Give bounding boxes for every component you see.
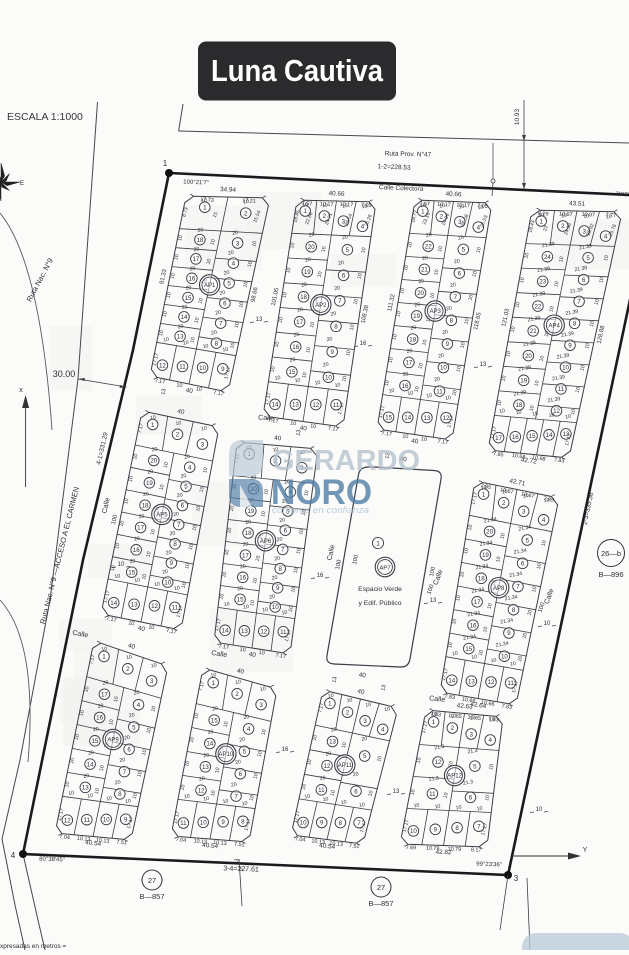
svg-text:20: 20 <box>215 310 222 317</box>
svg-text:10: 10 <box>196 386 203 393</box>
svg-text:18: 18 <box>196 237 203 244</box>
svg-text:10: 10 <box>565 414 572 421</box>
svg-text:20: 20 <box>228 250 235 257</box>
svg-text:10: 10 <box>445 395 452 402</box>
svg-text:AP12: AP12 <box>447 774 462 780</box>
svg-text:20: 20 <box>245 519 252 526</box>
svg-text:17: 17 <box>495 435 502 442</box>
svg-text:20: 20 <box>322 362 329 369</box>
svg-text:10: 10 <box>262 607 269 614</box>
svg-text:20: 20 <box>83 773 90 780</box>
svg-text:B—896: B—896 <box>598 570 623 579</box>
svg-text:6: 6 <box>354 789 358 796</box>
svg-text:5: 5 <box>525 537 529 544</box>
svg-text:18: 18 <box>300 294 307 301</box>
svg-text:6: 6 <box>181 503 185 510</box>
svg-text:21: 21 <box>421 267 428 274</box>
svg-text:1: 1 <box>376 540 380 547</box>
svg-text:15: 15 <box>211 717 218 724</box>
svg-text:10: 10 <box>334 382 341 389</box>
svg-text:12: 12 <box>159 362 166 369</box>
svg-text:3: 3 <box>469 731 473 738</box>
svg-text:3-4=227.61: 3-4=227.61 <box>223 865 259 873</box>
svg-text:16: 16 <box>292 344 299 351</box>
svg-text:10: 10 <box>340 799 347 806</box>
svg-text:10: 10 <box>314 380 321 387</box>
svg-text:8: 8 <box>278 566 282 573</box>
svg-text:10: 10 <box>174 585 181 592</box>
svg-text:5: 5 <box>586 255 590 262</box>
svg-text:10: 10 <box>490 657 497 664</box>
svg-text:20: 20 <box>402 371 409 378</box>
svg-text:10: 10 <box>210 672 217 679</box>
svg-text:26—b: 26—b <box>601 549 621 558</box>
svg-text:7.04: 7.04 <box>175 837 186 844</box>
svg-text:AP4: AP4 <box>549 323 561 329</box>
svg-text:11: 11 <box>180 820 187 827</box>
svg-text:20: 20 <box>185 285 192 292</box>
svg-text:13: 13 <box>393 789 400 795</box>
svg-text:43.51: 43.51 <box>569 200 586 208</box>
svg-text:20: 20 <box>308 232 315 239</box>
svg-text:20: 20 <box>271 575 278 582</box>
svg-text:20: 20 <box>203 752 210 759</box>
svg-text:16: 16 <box>282 747 289 753</box>
svg-text:18: 18 <box>515 402 522 409</box>
svg-text:9: 9 <box>446 341 450 348</box>
svg-text:10: 10 <box>359 802 366 809</box>
svg-text:AP1: AP1 <box>204 283 216 289</box>
svg-text:Luna Cautiva: Luna Cautiva <box>211 53 384 88</box>
svg-text:12: 12 <box>435 759 442 766</box>
svg-text:100°21'7": 100°21'7" <box>183 180 209 187</box>
svg-text:10: 10 <box>402 434 409 441</box>
svg-text:12: 12 <box>312 402 319 409</box>
svg-text:10.79: 10.79 <box>448 846 462 852</box>
svg-text:22: 22 <box>534 303 541 310</box>
svg-text:10: 10 <box>150 415 157 422</box>
svg-text:19: 19 <box>304 269 311 276</box>
svg-text:20: 20 <box>406 348 413 355</box>
svg-text:7.77: 7.77 <box>605 213 616 220</box>
svg-text:20: 20 <box>289 357 296 364</box>
svg-text:15: 15 <box>237 597 244 604</box>
svg-text:20: 20 <box>426 232 433 239</box>
svg-text:10: 10 <box>201 426 208 433</box>
svg-text:20: 20 <box>414 302 421 309</box>
svg-text:17.73: 17.73 <box>200 197 214 204</box>
svg-text:20: 20 <box>207 729 214 736</box>
svg-text:20: 20 <box>173 511 180 518</box>
svg-text:13: 13 <box>381 684 388 691</box>
svg-text:7.05: 7.05 <box>361 203 372 210</box>
svg-text:20: 20 <box>240 563 247 570</box>
svg-text:1: 1 <box>203 204 207 211</box>
svg-text:2: 2 <box>126 666 130 673</box>
svg-text:99°23'36": 99°23'36" <box>476 862 502 869</box>
svg-text:20: 20 <box>181 304 188 311</box>
svg-text:19: 19 <box>247 508 254 515</box>
svg-text:8: 8 <box>512 607 516 614</box>
svg-text:10.17: 10.17 <box>456 203 470 210</box>
svg-text:6: 6 <box>284 527 288 534</box>
svg-text:20: 20 <box>422 255 429 262</box>
svg-text:20: 20 <box>165 550 172 557</box>
svg-text:24: 24 <box>544 254 551 261</box>
svg-text:22: 22 <box>425 243 432 250</box>
svg-text:9: 9 <box>507 630 511 637</box>
svg-text:8: 8 <box>173 541 177 548</box>
svg-text:3: 3 <box>259 702 263 709</box>
svg-text:10: 10 <box>182 340 189 347</box>
svg-text:16: 16 <box>512 434 519 441</box>
svg-text:10: 10 <box>235 679 242 686</box>
svg-text:1-2=228.53: 1-2=228.53 <box>377 163 411 171</box>
svg-text:20: 20 <box>331 727 338 734</box>
svg-text:AP8: AP8 <box>493 586 505 592</box>
svg-text:20: 20 <box>454 258 461 265</box>
svg-text:10: 10 <box>222 347 229 354</box>
svg-text:4: 4 <box>11 851 16 860</box>
svg-text:20: 20 <box>143 491 150 498</box>
svg-text:18: 18 <box>409 336 416 343</box>
svg-text:16: 16 <box>133 547 140 554</box>
svg-text:7: 7 <box>338 298 342 305</box>
svg-text:20: 20 <box>486 529 493 536</box>
svg-text:AP11: AP11 <box>338 763 353 769</box>
svg-text:20: 20 <box>151 446 158 453</box>
svg-text:20: 20 <box>134 536 141 543</box>
svg-text:10: 10 <box>281 610 288 617</box>
svg-text:7.04: 7.04 <box>295 836 306 843</box>
svg-text:27: 27 <box>148 876 156 885</box>
svg-text:10: 10 <box>434 804 441 811</box>
svg-text:10: 10 <box>203 796 210 803</box>
svg-text:1: 1 <box>151 422 155 429</box>
svg-text:9: 9 <box>170 560 174 567</box>
svg-text:10: 10 <box>184 793 191 800</box>
svg-text:2: 2 <box>502 500 506 507</box>
svg-text:17.21: 17.21 <box>242 198 256 205</box>
svg-text:20: 20 <box>243 714 250 721</box>
svg-text:10: 10 <box>68 790 75 797</box>
svg-text:20: 20 <box>150 458 157 465</box>
svg-text:20: 20 <box>88 750 95 757</box>
svg-text:20: 20 <box>129 558 136 565</box>
svg-text:10: 10 <box>199 365 206 372</box>
svg-text:10: 10 <box>164 579 171 586</box>
svg-text:8.29: 8.29 <box>538 211 549 218</box>
svg-text:15: 15 <box>385 415 392 422</box>
svg-text:3: 3 <box>514 874 519 883</box>
svg-text:14: 14 <box>87 761 94 768</box>
svg-text:6: 6 <box>458 270 462 277</box>
svg-text:10: 10 <box>532 411 539 418</box>
svg-text:6: 6 <box>239 771 243 778</box>
svg-text:12: 12 <box>64 817 71 824</box>
svg-text:10: 10 <box>222 798 229 805</box>
svg-text:7.57: 7.57 <box>302 201 313 208</box>
svg-text:20: 20 <box>438 353 445 360</box>
svg-text:4: 4 <box>247 726 251 733</box>
svg-text:18: 18 <box>478 576 485 583</box>
svg-text:1: 1 <box>328 701 332 708</box>
svg-text:10: 10 <box>421 436 428 443</box>
svg-text:10: 10 <box>106 796 113 803</box>
svg-text:7.69: 7.69 <box>406 845 417 851</box>
svg-text:AP10: AP10 <box>219 752 234 758</box>
svg-text:20: 20 <box>434 376 441 383</box>
svg-text:20: 20 <box>119 757 126 764</box>
svg-text:10: 10 <box>515 409 522 416</box>
svg-text:11: 11 <box>179 364 186 371</box>
svg-text:20: 20 <box>293 332 300 339</box>
svg-text:E: E <box>20 181 24 187</box>
svg-text:10: 10 <box>175 420 182 427</box>
svg-text:19: 19 <box>482 552 489 559</box>
svg-text:16: 16 <box>470 622 477 629</box>
svg-text:7: 7 <box>234 793 238 800</box>
svg-text:20: 20 <box>319 775 326 782</box>
svg-text:20: 20 <box>334 285 341 292</box>
svg-text:16: 16 <box>360 341 367 347</box>
svg-text:20: 20 <box>223 270 230 277</box>
svg-text:20: 20 <box>326 336 333 343</box>
svg-text:13: 13 <box>256 317 263 323</box>
svg-text:10.13: 10.13 <box>213 840 227 847</box>
svg-text:20: 20 <box>199 776 206 783</box>
svg-text:6: 6 <box>342 273 346 280</box>
svg-text:42.63: 42.63 <box>456 702 473 710</box>
svg-text:Calle: Calle <box>429 695 446 703</box>
svg-text:15: 15 <box>465 646 472 653</box>
svg-text:5: 5 <box>132 724 136 731</box>
svg-text:10: 10 <box>410 828 417 835</box>
svg-text:20: 20 <box>410 325 417 332</box>
svg-text:10: 10 <box>548 412 555 419</box>
svg-text:20: 20 <box>417 290 424 297</box>
svg-text:8: 8 <box>455 825 459 832</box>
svg-text:14: 14 <box>404 415 411 422</box>
svg-text:7.05: 7.05 <box>477 203 488 210</box>
svg-text:5: 5 <box>184 484 188 491</box>
svg-text:20: 20 <box>276 536 283 543</box>
svg-text:1: 1 <box>432 719 436 726</box>
svg-text:7: 7 <box>219 320 223 327</box>
svg-text:11: 11 <box>429 791 436 798</box>
svg-text:10: 10 <box>388 388 395 395</box>
svg-text:20: 20 <box>237 586 244 593</box>
svg-text:10: 10 <box>346 697 353 704</box>
svg-text:5: 5 <box>363 753 367 760</box>
svg-text:20: 20 <box>176 492 183 499</box>
svg-text:20: 20 <box>147 469 154 476</box>
svg-text:80°38'45": 80°38'45" <box>39 857 65 864</box>
svg-text:xpresadas en metros =: xpresadas en metros = <box>0 943 67 950</box>
svg-text:10.87: 10.87 <box>559 211 573 218</box>
svg-text:AP6: AP6 <box>260 539 272 545</box>
svg-text:10: 10 <box>294 377 301 384</box>
svg-text:10: 10 <box>87 793 94 800</box>
svg-text:13: 13 <box>292 402 299 409</box>
svg-text:13: 13 <box>241 628 248 635</box>
svg-text:AP2: AP2 <box>315 303 327 309</box>
svg-text:20: 20 <box>525 353 532 360</box>
svg-text:20: 20 <box>133 690 140 697</box>
svg-text:7.51: 7.51 <box>349 843 360 850</box>
svg-text:14: 14 <box>546 432 553 439</box>
svg-text:12: 12 <box>151 603 158 610</box>
svg-text:8: 8 <box>339 820 343 827</box>
svg-text:10: 10 <box>310 423 317 430</box>
svg-text:4: 4 <box>232 260 236 267</box>
svg-text:18: 18 <box>142 502 149 509</box>
svg-text:10: 10 <box>176 382 183 389</box>
svg-text:9: 9 <box>320 820 324 827</box>
svg-text:14: 14 <box>110 600 117 607</box>
svg-text:7.51: 7.51 <box>234 842 245 849</box>
svg-text:10: 10 <box>300 820 307 827</box>
svg-text:13: 13 <box>234 858 241 865</box>
svg-text:20: 20 <box>197 227 204 234</box>
svg-text:10: 10 <box>384 706 391 713</box>
svg-text:10: 10 <box>304 794 311 801</box>
svg-text:7.57: 7.57 <box>419 201 430 208</box>
svg-text:5: 5 <box>462 247 466 254</box>
svg-text:10: 10 <box>154 581 161 588</box>
svg-text:20: 20 <box>305 257 312 264</box>
svg-text:10: 10 <box>536 807 543 813</box>
svg-text:3: 3 <box>201 441 205 448</box>
svg-text:8: 8 <box>215 340 219 347</box>
svg-text:10: 10 <box>544 621 551 627</box>
svg-text:20: 20 <box>297 307 304 314</box>
svg-text:20: 20 <box>128 712 135 719</box>
svg-text:10: 10 <box>241 801 248 808</box>
svg-text:2: 2 <box>235 691 239 698</box>
svg-text:13: 13 <box>177 334 184 341</box>
svg-text:20: 20 <box>235 759 242 766</box>
svg-text:14: 14 <box>181 314 188 321</box>
svg-text:10: 10 <box>243 604 250 611</box>
svg-text:10: 10 <box>163 337 170 344</box>
svg-text:2: 2 <box>346 709 350 716</box>
svg-text:10.65: 10.65 <box>448 713 462 720</box>
svg-text:20: 20 <box>330 311 337 318</box>
svg-text:10: 10 <box>272 604 279 611</box>
svg-text:3: 3 <box>363 718 367 725</box>
svg-text:10: 10 <box>413 802 420 809</box>
svg-text:AP3: AP3 <box>430 309 442 315</box>
svg-text:20: 20 <box>124 735 131 742</box>
svg-text:11: 11 <box>84 817 91 824</box>
svg-text:20: 20 <box>301 282 308 289</box>
svg-text:10.17: 10.17 <box>340 202 354 209</box>
svg-text:x: x <box>19 387 23 394</box>
svg-text:10: 10 <box>103 817 110 824</box>
svg-text:40.66: 40.66 <box>328 190 345 198</box>
svg-text:Y: Y <box>583 847 588 854</box>
svg-text:11: 11 <box>558 386 565 393</box>
svg-text:4: 4 <box>381 727 385 734</box>
svg-text:Calle: Calle <box>258 414 275 422</box>
svg-text:20: 20 <box>93 726 100 733</box>
svg-text:Ruta Prov. N°47: Ruta Prov. N°47 <box>385 149 432 158</box>
svg-text:8.17: 8.17 <box>471 847 482 853</box>
svg-text:20: 20 <box>219 290 226 297</box>
svg-text:10: 10 <box>365 702 372 709</box>
svg-text:20: 20 <box>239 737 246 744</box>
svg-text:10: 10 <box>114 573 121 580</box>
svg-text:15: 15 <box>91 738 98 745</box>
svg-text:20: 20 <box>114 779 121 786</box>
svg-text:Espacio Verde: Espacio Verde <box>358 586 402 593</box>
svg-text:6: 6 <box>127 747 131 754</box>
svg-text:13: 13 <box>423 415 430 422</box>
svg-text:10: 10 <box>562 364 569 371</box>
svg-text:10.13: 10.13 <box>193 838 207 845</box>
svg-text:3: 3 <box>522 509 526 516</box>
svg-text:11: 11 <box>436 388 443 395</box>
svg-text:7: 7 <box>123 769 127 776</box>
svg-text:17: 17 <box>405 360 412 367</box>
svg-text:10: 10 <box>455 805 462 812</box>
svg-text:7.83: 7.83 <box>430 711 441 718</box>
svg-text:20: 20 <box>361 736 368 743</box>
svg-text:20: 20 <box>231 782 238 789</box>
svg-text:12: 12 <box>324 763 331 770</box>
svg-text:20: 20 <box>450 282 457 289</box>
svg-text:34.94: 34.94 <box>220 186 237 194</box>
svg-text:16: 16 <box>188 276 195 283</box>
svg-text:10: 10 <box>290 421 297 428</box>
svg-text:40.66: 40.66 <box>445 191 462 199</box>
svg-text:19: 19 <box>520 378 527 385</box>
svg-text:10: 10 <box>200 820 207 827</box>
svg-text:6: 6 <box>521 561 525 568</box>
svg-text:10: 10 <box>510 661 517 668</box>
svg-text:10: 10 <box>239 647 246 654</box>
svg-text:21: 21 <box>530 328 537 335</box>
svg-text:10: 10 <box>134 577 141 584</box>
svg-text:17: 17 <box>192 256 199 263</box>
svg-text:18: 18 <box>245 530 252 537</box>
svg-text:13: 13 <box>332 676 339 683</box>
svg-text:20: 20 <box>211 330 218 337</box>
svg-text:2: 2 <box>244 210 248 217</box>
svg-text:7: 7 <box>454 294 458 301</box>
svg-text:10: 10 <box>258 650 265 657</box>
svg-text:1: 1 <box>211 680 215 687</box>
svg-text:10: 10 <box>101 646 108 653</box>
svg-text:1: 1 <box>102 654 106 661</box>
svg-text:9: 9 <box>434 827 438 834</box>
svg-text:3: 3 <box>150 678 154 685</box>
svg-text:15: 15 <box>529 433 536 440</box>
svg-text:13: 13 <box>468 678 475 685</box>
svg-text:B—857: B—857 <box>139 892 164 901</box>
svg-text:8: 8 <box>450 318 454 325</box>
svg-text:20: 20 <box>102 680 109 687</box>
svg-text:79°3': 79°3' <box>615 192 629 198</box>
svg-text:10: 10 <box>260 686 267 693</box>
svg-text:20: 20 <box>418 278 425 285</box>
svg-text:16: 16 <box>239 575 246 582</box>
svg-text:AP7: AP7 <box>380 565 391 571</box>
svg-text:20: 20 <box>274 556 281 563</box>
svg-text:10: 10 <box>476 806 483 813</box>
svg-text:10: 10 <box>407 390 414 397</box>
